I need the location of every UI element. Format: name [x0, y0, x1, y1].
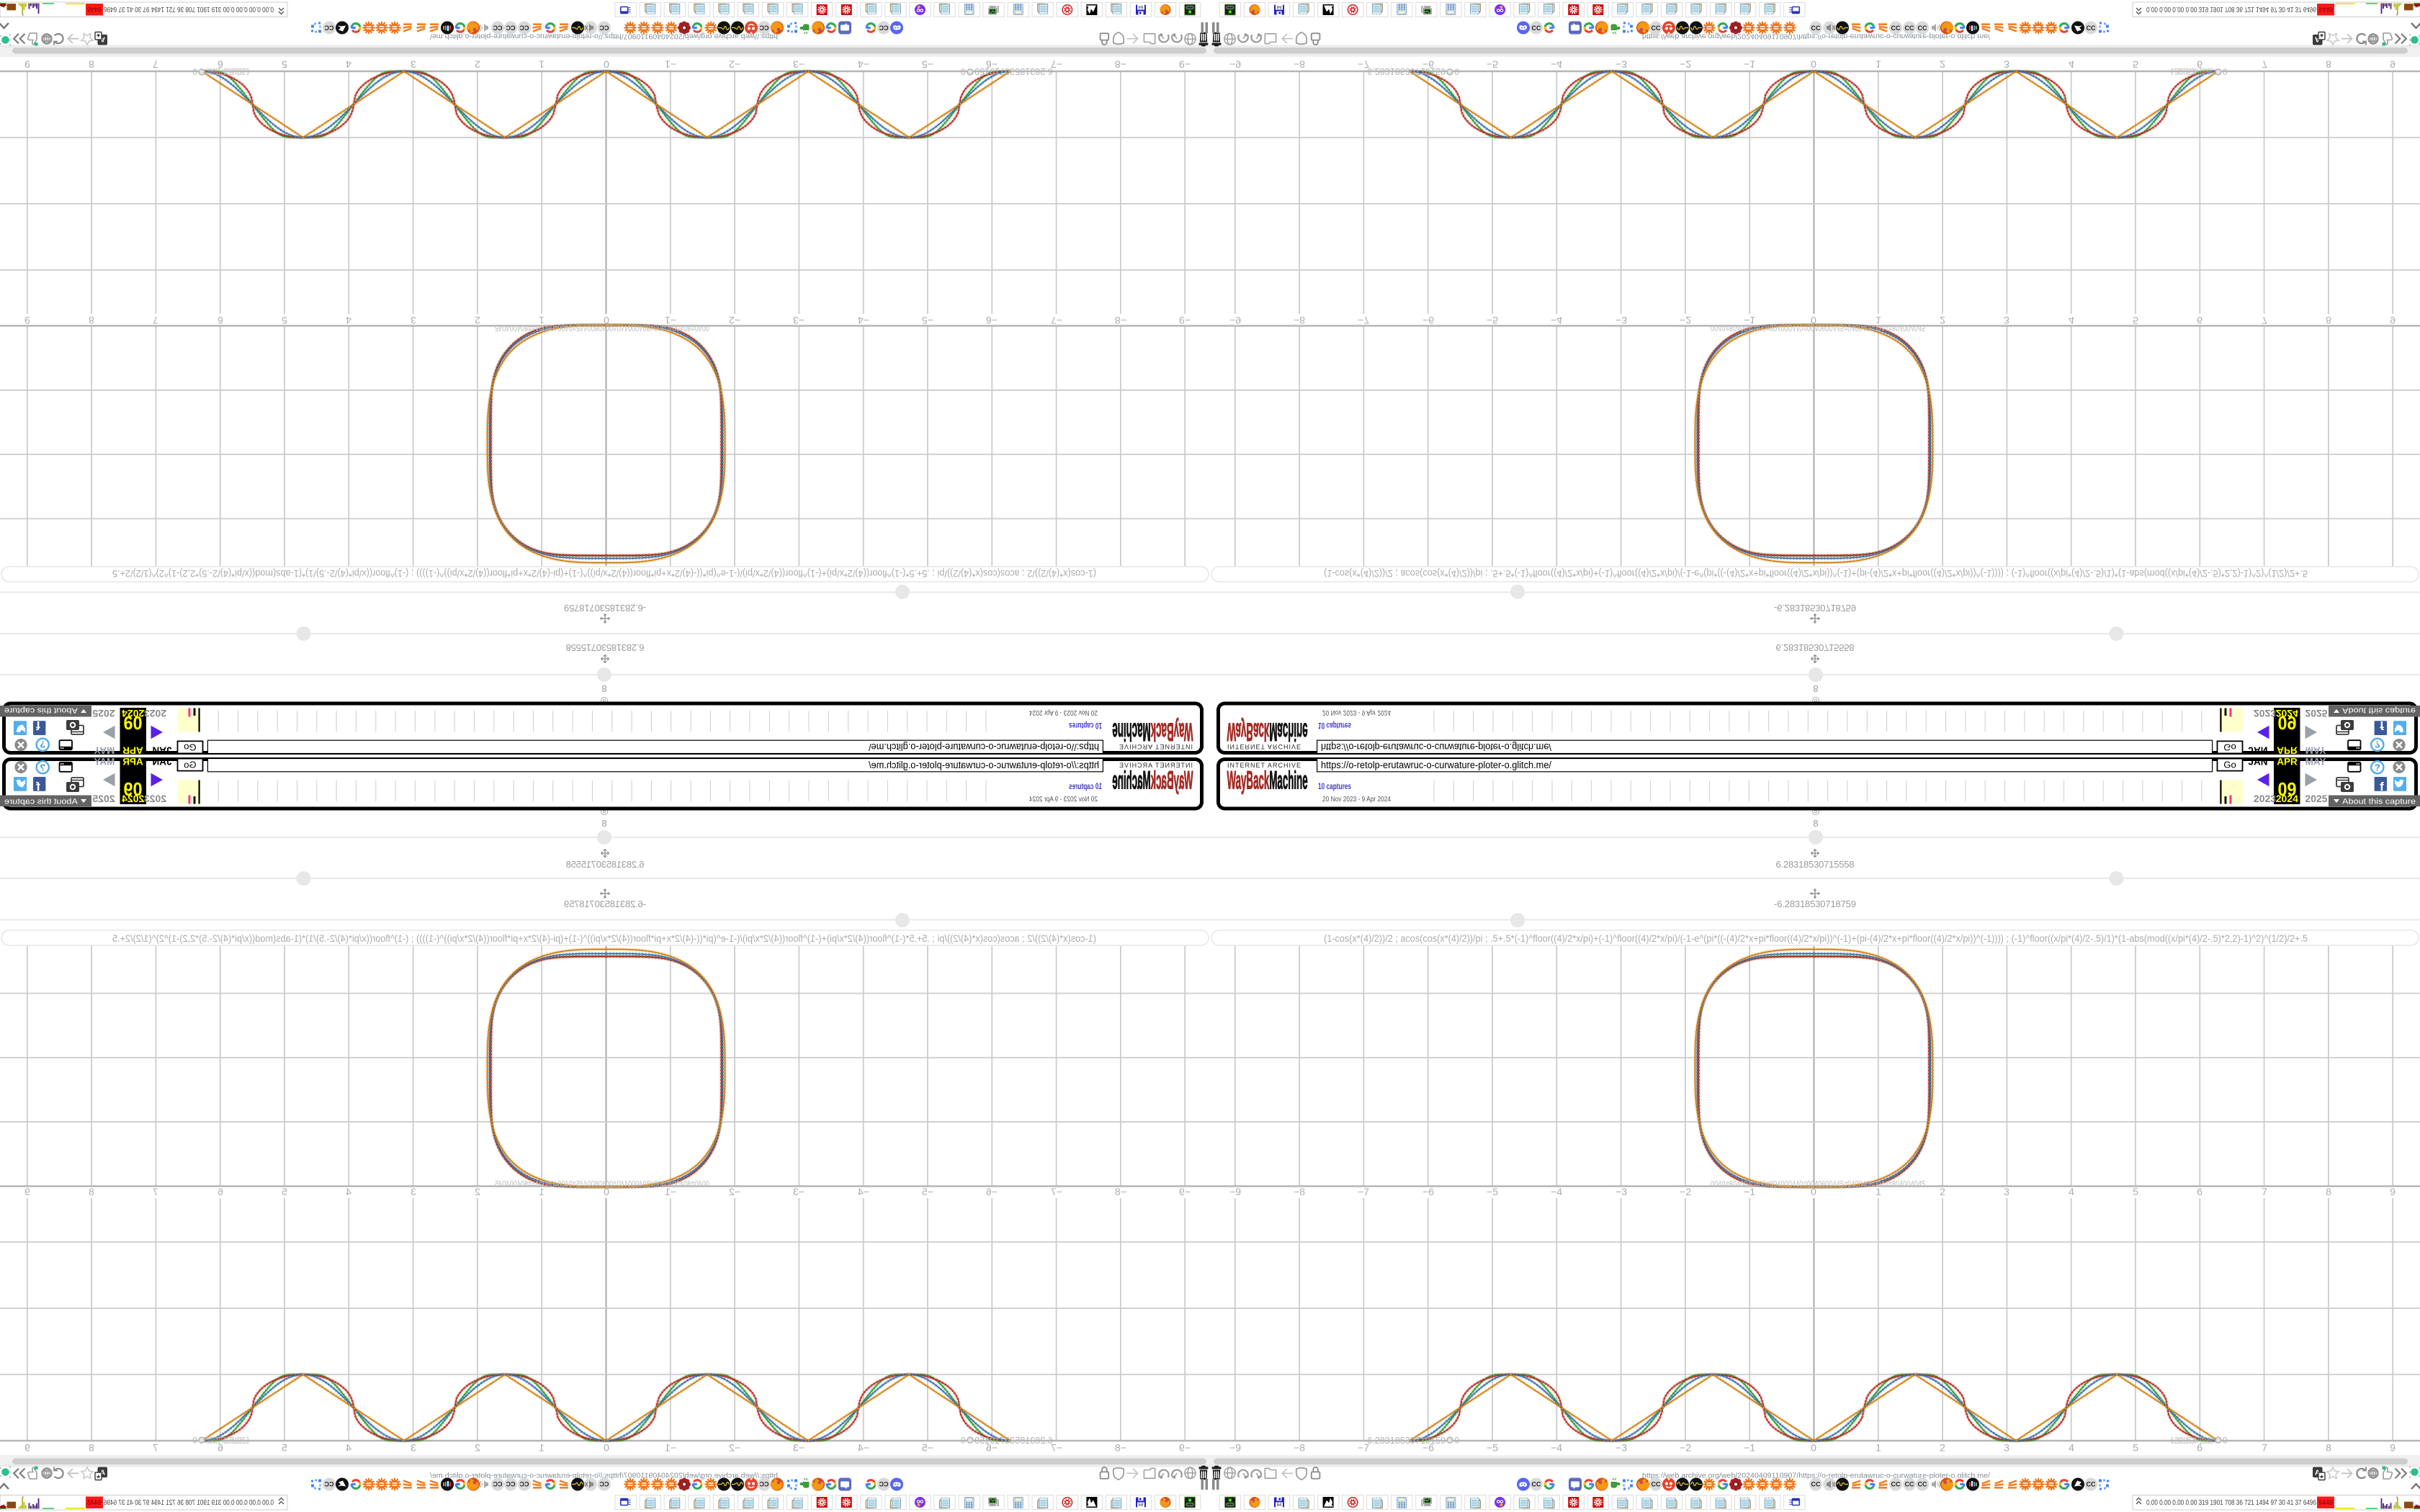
svg-text:9: 9 — [2390, 1442, 2396, 1454]
svg-text:8: 8 — [1813, 818, 1818, 829]
svg-text:2025: 2025 — [2305, 793, 2327, 804]
svg-text:−8: −8 — [1294, 1442, 1305, 1454]
svg-text:9448: 9448 — [2318, 1499, 2333, 1507]
svg-text:Go: Go — [2223, 760, 2236, 770]
svg-text:0: 0 — [1811, 1186, 1816, 1197]
svg-text:5: 5 — [2133, 1442, 2138, 1454]
svg-text:0: 0 — [1811, 1442, 1816, 1454]
svg-text:f: f — [2380, 780, 2384, 793]
svg-text:−3: −3 — [1615, 1186, 1627, 1197]
svg-text:−5: −5 — [1487, 1186, 1498, 1197]
svg-text:0040#8040040400#804000440#0040: 0040#8040040400#804000440#0040800445#040… — [1711, 1179, 1925, 1189]
svg-text:JAN: JAN — [2248, 757, 2267, 768]
svg-text:−7: −7 — [1358, 1186, 1369, 1197]
svg-text:−3: −3 — [1615, 1442, 1627, 1454]
svg-text:6: 6 — [2197, 1186, 2202, 1197]
svg-text:−1: −1 — [1744, 1442, 1755, 1454]
svg-text:6.28318530715558: 6.28318530715558 — [1776, 859, 1855, 870]
svg-text:About this capture: About this capture — [2342, 798, 2416, 806]
svg-text:8: 8 — [2326, 1186, 2331, 1197]
svg-text:6.283185307155607: 6.283185307155607 — [2171, 1435, 2215, 1446]
svg-text:?: ? — [2375, 762, 2380, 773]
svg-text:7: 7 — [2262, 1186, 2267, 1197]
svg-text:APR: APR — [2277, 757, 2298, 768]
svg-text:−7: −7 — [1358, 1442, 1369, 1454]
svg-text:−6: −6 — [1422, 1442, 1434, 1454]
svg-text:2: 2 — [1940, 1442, 1945, 1454]
svg-text:−2: −2 — [1680, 1186, 1691, 1197]
svg-text:5: 5 — [2133, 1186, 2138, 1197]
svg-text:0: 0 — [2223, 1436, 2228, 1446]
svg-text:1: 1 — [1875, 1186, 1881, 1197]
svg-text:−6: −6 — [1422, 1186, 1434, 1197]
svg-text:−5: −5 — [1487, 1442, 1498, 1454]
svg-text:−4: −4 — [1551, 1186, 1562, 1197]
svg-text:3: 3 — [2004, 1186, 2009, 1197]
svg-text:−9: −9 — [1229, 1186, 1241, 1197]
svg-text:−2: −2 — [1680, 1442, 1691, 1454]
svg-text:4: 4 — [2069, 1186, 2074, 1197]
svg-text:1: 1 — [1875, 1442, 1881, 1454]
svg-text:−4: −4 — [1551, 1442, 1562, 1454]
svg-text:-6.28318530718759: -6.28318530718759 — [1774, 899, 1856, 909]
svg-text:20 Nov 2023 - 9 Apr 2024: 20 Nov 2023 - 9 Apr 2024 — [1322, 796, 1391, 804]
svg-text:10 captures: 10 captures — [1318, 783, 1351, 791]
svg-text:−8: −8 — [1294, 1186, 1305, 1197]
svg-text:2: 2 — [1940, 1186, 1945, 1197]
svg-text:7: 7 — [2262, 1442, 2267, 1454]
svg-text:0: 0 — [1455, 1436, 1460, 1446]
svg-text:2024: 2024 — [2276, 793, 2298, 804]
svg-text:6: 6 — [2197, 1442, 2202, 1454]
svg-text:https://o-retolp-erutawruc-o-c: https://o-retolp-erutawruc-o-curwature-p… — [1321, 760, 1551, 770]
svg-text:★: ★ — [2319, 1474, 2324, 1480]
svg-text:MAY: MAY — [2305, 757, 2326, 768]
svg-text:−9: −9 — [1229, 1442, 1241, 1454]
svg-text:4: 4 — [2069, 1442, 2074, 1454]
svg-text:9: 9 — [2390, 1186, 2396, 1197]
svg-text:8: 8 — [2326, 1442, 2331, 1454]
svg-text:2023: 2023 — [2254, 793, 2276, 804]
svg-text:0.00 0.00 0.00 0.00 319 1901: 0.00 0.00 0.00 0.00 319 1901 708 36 721 … — [2146, 1499, 2316, 1507]
svg-text:(1-cos(x*(4)/2))/2 ; acos(cos(: (1-cos(x*(4)/2))/2 ; acos(cos(x*(4)/2))/… — [1324, 933, 2308, 944]
svg-text:3: 3 — [2004, 1442, 2009, 1454]
svg-text:−1: −1 — [1744, 1186, 1755, 1197]
svg-text:WayBackMachine: WayBackMachine — [1227, 766, 1308, 794]
